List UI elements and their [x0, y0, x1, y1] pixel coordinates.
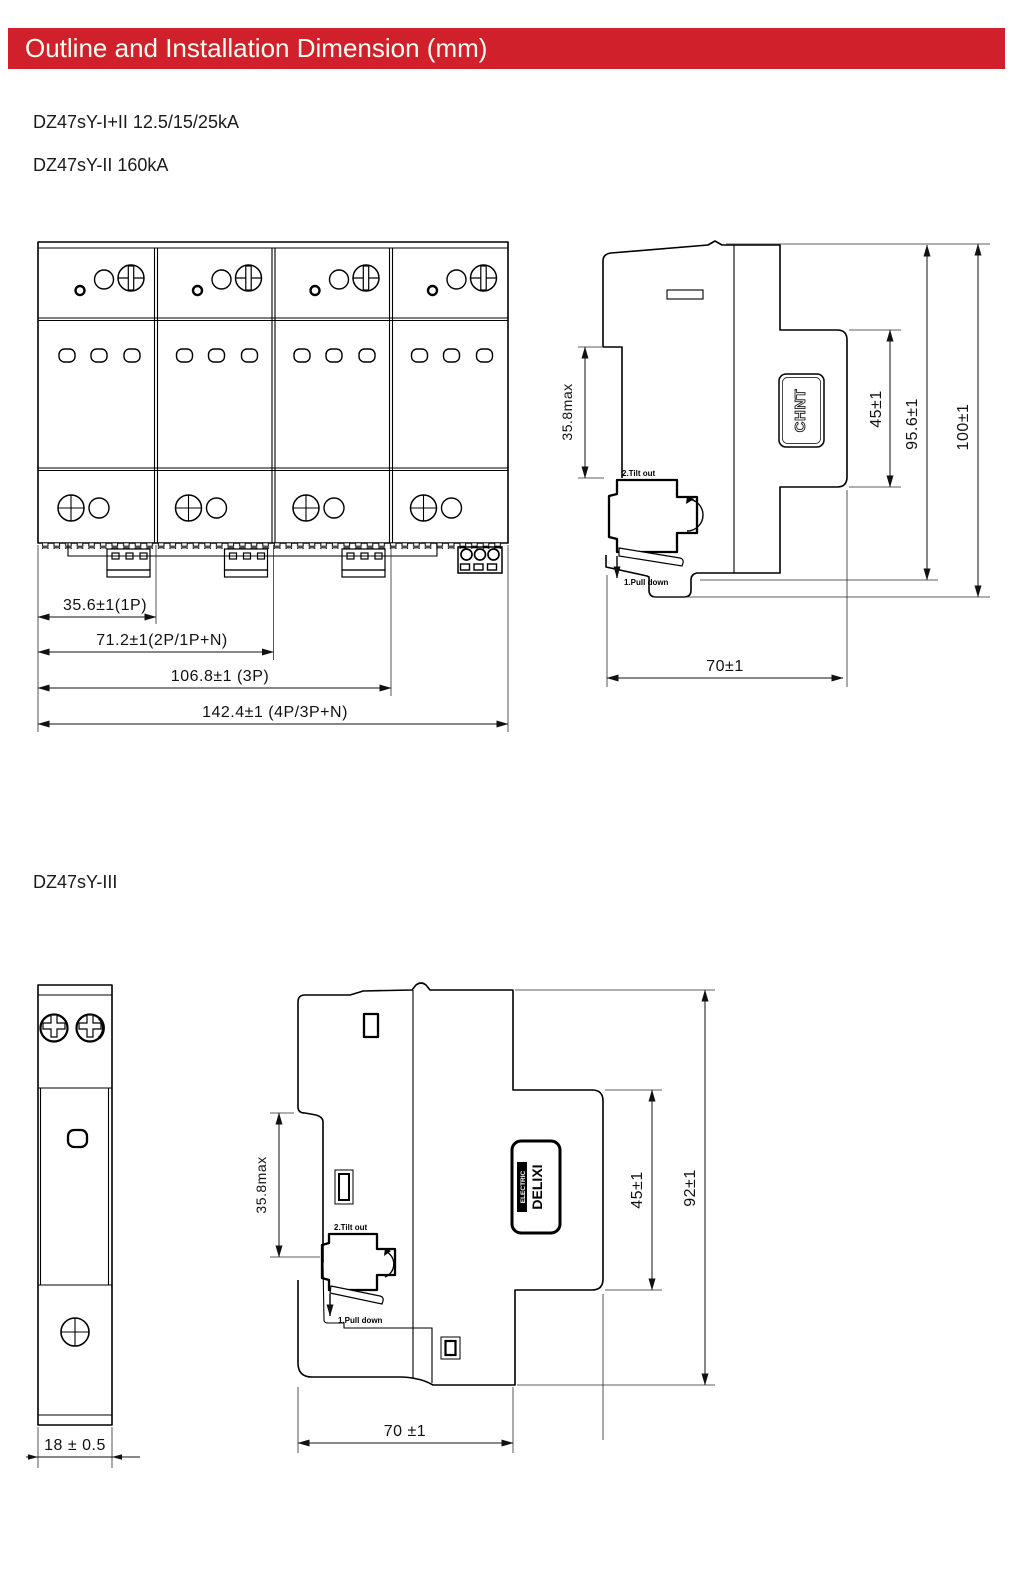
note-pull-down-iii: 1.Pull down [338, 1316, 383, 1325]
side-view-top-drawing: CHNT 2.Tilt out 1.Pull down 35.8max 45 [560, 228, 1010, 698]
dim-rail-depth: 35.8max [559, 383, 575, 440]
side-dimensions: 35.8max 45±1 95.6±1 100±1 70±1 [559, 244, 990, 687]
dim-92-iii: 92±1 [682, 1169, 699, 1206]
din-rail-clip-iii: 2.Tilt out 1.Pull down [322, 1223, 395, 1325]
delixi-electric-text: ELECTRIC [520, 1170, 527, 1203]
note-tilt-out: 2.Tilt out [622, 469, 656, 478]
tilt-arrow-arc [687, 499, 703, 531]
indicator-window [68, 1130, 87, 1147]
mid-hole [335, 1170, 353, 1204]
section-header: Outline and Installation Dimension (mm) [8, 28, 1005, 69]
dim-3p: 106.8±1 (3P) [171, 668, 269, 685]
device-profile-iii: DELIXI ELECTRIC 2.Tilt out 1.Pull down [298, 983, 603, 1385]
dim-width-70: 70±1 [706, 658, 743, 675]
brand-label: CHNT [779, 374, 824, 447]
front-view-iii-drawing: 18 ± 0.5 [25, 960, 165, 1475]
top-screw-right [77, 1015, 104, 1042]
tilt-arrow-arc-iii [385, 1251, 394, 1277]
module-top-indicators [76, 265, 497, 295]
din-rail-teeth [42, 543, 504, 549]
module-separators [155, 248, 393, 543]
dim-95-6: 95.6±1 [904, 398, 921, 450]
dim-width-70-iii: 70 ±1 [384, 1423, 426, 1440]
neutral-terminal-block [458, 547, 502, 573]
width-dimensions: 35.6±1(1P) 71.2±1(2P/1P+N) 106.8±1 (3P) … [38, 545, 508, 732]
top-slot [667, 290, 703, 299]
brand-logo: CHNT [792, 389, 809, 433]
width-dimension-18: 18 ± 0.5 [26, 1427, 140, 1468]
model-label-dz47sy-ii: DZ47sY-II 160kA [33, 155, 168, 176]
clip-lever [619, 548, 683, 566]
dim-width-18: 18 ± 0.5 [44, 1437, 106, 1454]
dim-1p: 35.6±1(1P) [63, 597, 147, 614]
datasheet-page: Outline and Installation Dimension (mm) … [0, 0, 1013, 1583]
delixi-label: DELIXI ELECTRIC [512, 1141, 560, 1233]
dim-45: 45±1 [868, 390, 885, 427]
device-profile: CHNT 2.Tilt out 1.Pull down [603, 241, 847, 597]
device-body-front [38, 242, 508, 577]
device-body-front-iii [38, 985, 112, 1425]
top-screw-left [41, 1015, 68, 1042]
dim-45-iii: 45±1 [629, 1171, 646, 1208]
bottom-screw [61, 1318, 89, 1346]
front-view-4pole-drawing: 35.6±1(1P) 71.2±1(2P/1P+N) 106.8±1 (3P) … [30, 235, 530, 770]
side-view-iii-drawing: DELIXI ELECTRIC 2.Tilt out 1.Pull down 3… [250, 950, 750, 1470]
dim-2p: 71.2±1(2P/1P+N) [96, 632, 227, 649]
model-label-dz47sy-iii: DZ47sY-III [33, 872, 117, 893]
top-hole [364, 1014, 378, 1037]
section-title: Outline and Installation Dimension (mm) [25, 33, 487, 63]
clip-lever-iii [330, 1286, 383, 1304]
module-vent-slots [59, 349, 493, 362]
dim-rail-depth-iii: 35.8max [253, 1156, 269, 1213]
delixi-logo-text: DELIXI [529, 1164, 545, 1209]
terminal-blocks [107, 549, 385, 577]
model-label-dz47sy-i-ii: DZ47sY-I+II 12.5/15/25kA [33, 112, 239, 133]
dim-4p: 142.4±1 (4P/3P+N) [202, 704, 348, 721]
bottom-hole [441, 1337, 460, 1359]
note-tilt-out-iii: 2.Tilt out [334, 1223, 368, 1232]
note-pull-down: 1.Pull down [624, 578, 669, 587]
module-bottom-screws [58, 495, 462, 521]
din-rail-clip: 2.Tilt out 1.Pull down [609, 469, 703, 587]
dim-100: 100±1 [955, 404, 972, 451]
